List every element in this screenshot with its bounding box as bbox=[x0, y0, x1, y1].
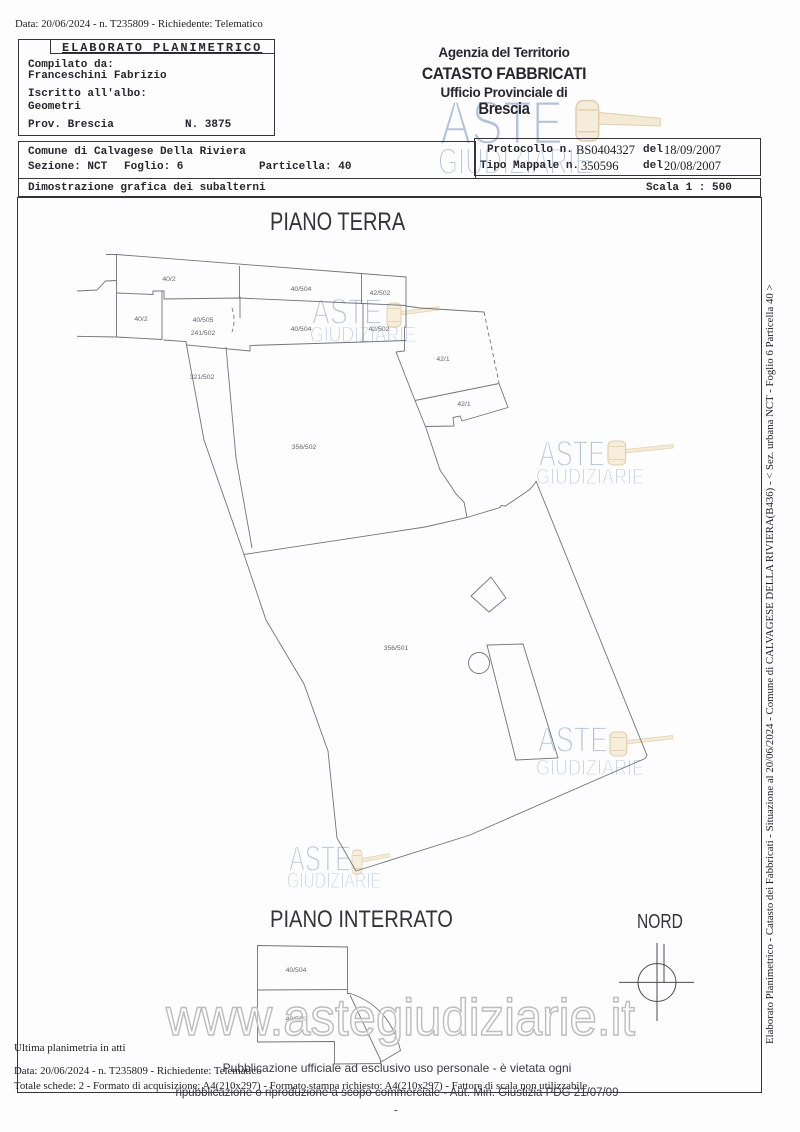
svg-text:42/1: 42/1 bbox=[457, 401, 470, 408]
svg-text:356/502: 356/502 bbox=[292, 444, 317, 451]
svg-text:40/504: 40/504 bbox=[291, 326, 312, 333]
svg-text:241/502: 241/502 bbox=[191, 330, 216, 337]
svg-text:40/504: 40/504 bbox=[291, 286, 312, 293]
svg-text:42/1: 42/1 bbox=[436, 356, 449, 363]
svg-text:321/502: 321/502 bbox=[190, 374, 215, 381]
svg-text:40/2: 40/2 bbox=[134, 316, 147, 323]
svg-text:40/505: 40/505 bbox=[193, 317, 214, 324]
svg-text:www.astegiudiziarie.it: www.astegiudiziarie.it bbox=[165, 989, 635, 1047]
svg-text:42/502: 42/502 bbox=[369, 326, 390, 333]
svg-text:40/2: 40/2 bbox=[162, 276, 175, 283]
svg-text:356/501: 356/501 bbox=[384, 645, 409, 652]
svg-text:42/502: 42/502 bbox=[370, 290, 391, 297]
svg-text:40/504: 40/504 bbox=[286, 967, 307, 974]
